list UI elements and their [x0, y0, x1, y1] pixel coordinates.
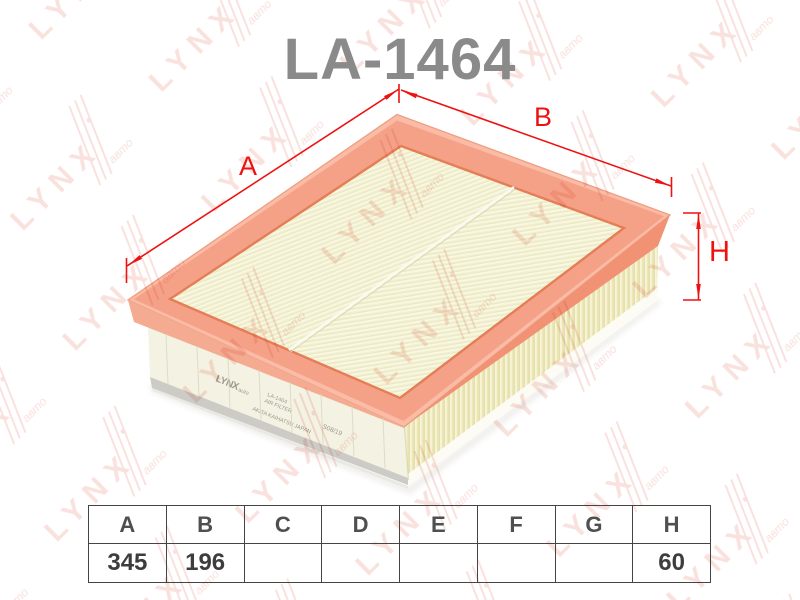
- svg-text:A: A: [239, 151, 257, 181]
- svg-text:B: B: [534, 102, 552, 132]
- svg-text:H: H: [709, 236, 730, 268]
